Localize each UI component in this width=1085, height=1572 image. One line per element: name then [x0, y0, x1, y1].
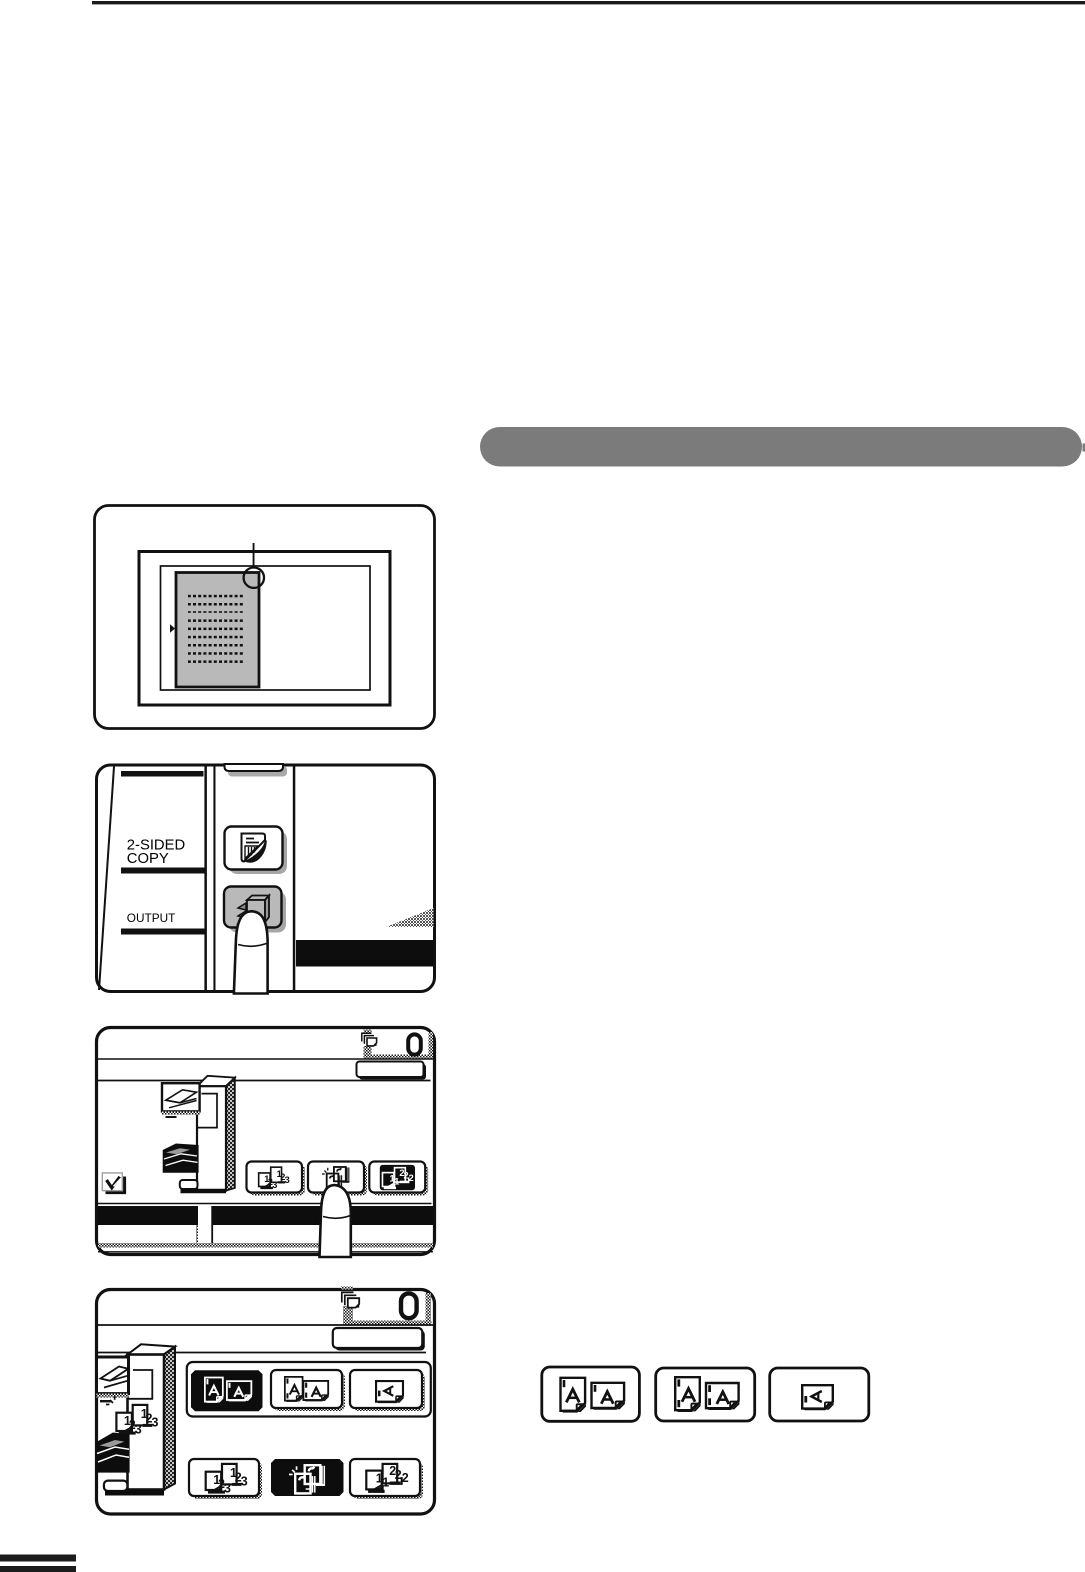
svg-text:OUTPUT: OUTPUT [127, 911, 176, 925]
svg-text:COPY: COPY [127, 851, 169, 867]
